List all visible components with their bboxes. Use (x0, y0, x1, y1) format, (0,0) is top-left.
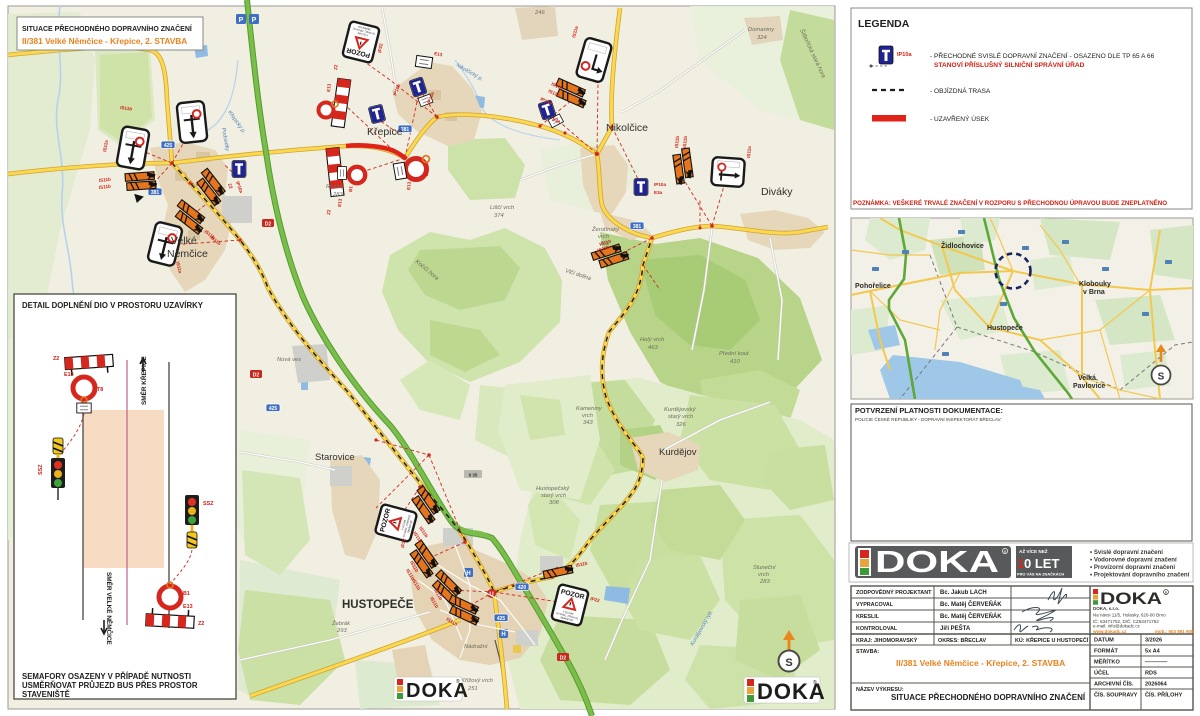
svg-text:Bc. Jakub LACH: Bc. Jakub LACH (940, 590, 987, 596)
svg-text:www.dokadc.cz: www.dokadc.cz (1092, 629, 1127, 634)
svg-text:STANOVÍ PŘÍSLUŠNÝ SILNIČNÍ SPR: STANOVÍ PŘÍSLUŠNÝ SILNIČNÍ SPRÁVNÍ ÚŘAD (934, 60, 1085, 69)
svg-text:0 LET: 0 LET (1024, 556, 1059, 571)
svg-text:KONTROLOVAL: KONTROLOVAL (856, 626, 898, 632)
svg-text:5x A4: 5x A4 (1145, 649, 1161, 655)
svg-text:S: S (1158, 372, 1165, 383)
svg-text:————: ———— (1145, 660, 1168, 666)
svg-text:ČÍS. PŘÍLOHY: ČÍS. PŘÍLOHY (1145, 691, 1183, 699)
svg-text:• Provizorní dopravní značení: • Provizorní dopravní značení (1090, 564, 1175, 571)
svg-text:Jiří PEŠTA: Jiří PEŠTA (940, 624, 971, 632)
svg-text:II/381 Velké Němčice - Křepice: II/381 Velké Němčice - Křepice, 2. STAVB… (896, 658, 1065, 668)
svg-text:ČÍS. SOUPRAVY: ČÍS. SOUPRAVY (1094, 691, 1138, 699)
svg-text:RDS: RDS (1145, 671, 1157, 677)
svg-text:Na návsi 11/5, Holasky, 620-00: Na návsi 11/5, Holasky, 620-00 Brno (1093, 613, 1166, 618)
svg-text:Bc. Matěj ČERVEŇÁK: Bc. Matěj ČERVEŇÁK (940, 612, 1002, 620)
svg-text:FORMÁT: FORMÁT (1094, 648, 1119, 655)
svg-text:R: R (1004, 550, 1007, 554)
svg-text:VYPRACOVAL: VYPRACOVAL (856, 602, 894, 608)
svg-text:POZNÁMKA: VEŠKERÉ TRVALÉ ZNAČE: POZNÁMKA: VEŠKERÉ TRVALÉ ZNAČENÍ V ROZPO… (853, 199, 1167, 207)
svg-text:e-mail: info@dokadc.cz: e-mail: info@dokadc.cz (1093, 624, 1141, 629)
svg-text:R: R (1165, 591, 1168, 595)
svg-text:KRESLIL: KRESLIL (856, 614, 880, 620)
svg-text:IP10a: IP10a (897, 52, 913, 58)
svg-text:POTVRZENÍ PLATNOSTI DOKUMENTAC: POTVRZENÍ PLATNOSTI DOKUMENTACE: (855, 406, 1003, 415)
svg-text:Židlochovice: Židlochovice (941, 241, 984, 250)
svg-text:DATUM: DATUM (1094, 638, 1114, 644)
svg-text:SITUACE PŘECHODNÉHO DOPRAVNÍHO: SITUACE PŘECHODNÉHO DOPRAVNÍHO ZNAČENÍ (891, 693, 1086, 702)
svg-text:3/2026: 3/2026 (1145, 638, 1162, 644)
svg-text:• Vodorovné dopravní značení: • Vodorovné dopravní značení (1090, 557, 1177, 564)
svg-text:Pavlovice: Pavlovice (1073, 383, 1105, 390)
svg-text:OKRES: BŘECLAV: OKRES: BŘECLAV (938, 636, 987, 644)
svg-text:DOKA: DOKA (875, 544, 999, 579)
svg-text:- OBJÍZDNÁ TRASA: - OBJÍZDNÁ TRASA (930, 86, 991, 95)
svg-text:PRO VÁS NA ZNAČKÁCH: PRO VÁS NA ZNAČKÁCH (1017, 572, 1064, 577)
svg-text:v Brna: v Brna (1083, 289, 1105, 296)
svg-text:DOKA, s.r.o.: DOKA, s.r.o. (1093, 606, 1119, 611)
svg-text:AŽ VÍCE NEŽ: AŽ VÍCE NEŽ (1019, 547, 1048, 554)
svg-text:- PŘECHODNÉ SVISLÉ DOPRAVNÍ ZN: - PŘECHODNÉ SVISLÉ DOPRAVNÍ ZNAČENÍ - OS… (930, 51, 1155, 60)
svg-text:LEGENDA: LEGENDA (858, 18, 910, 30)
svg-text:STAVBA:: STAVBA: (856, 649, 879, 655)
svg-text:Hustopeče: Hustopeče (987, 325, 1023, 332)
svg-text:• Projektování dopravního znač: • Projektování dopravního značení (1090, 572, 1190, 579)
svg-text:KRAJ: JIHOMORAVSKÝ: KRAJ: JIHOMORAVSKÝ (856, 637, 918, 644)
svg-text:mob.: 603 891 905: mob.: 603 891 905 (1155, 629, 1194, 634)
svg-text:• Svislé dopravní značení: • Svislé dopravní značení (1090, 549, 1163, 556)
svg-text:NÁZEV VÝKRESU:: NÁZEV VÝKRESU: (856, 686, 904, 693)
svg-text:- UZAVŘENÝ ÚSEK: - UZAVŘENÝ ÚSEK (930, 114, 990, 123)
svg-text:KÚ: KŘEPICE U HUSTOPEČÍ: KÚ: KŘEPICE U HUSTOPEČÍ (1015, 636, 1089, 644)
svg-text:MĚŘÍTKO: MĚŘÍTKO (1094, 658, 1120, 666)
svg-text:POLICIE ČESKÉ REPUBLIKY - DOPR: POLICIE ČESKÉ REPUBLIKY - DOPRAVNÍ INSPE… (855, 415, 1002, 422)
svg-text:Bc. Matěj ČERVEŇÁK: Bc. Matěj ČERVEŇÁK (940, 600, 1002, 608)
svg-text:2026064: 2026064 (1145, 682, 1168, 688)
svg-text:ZODPOVĚDNÝ PROJEKTANT: ZODPOVĚDNÝ PROJEKTANT (856, 588, 932, 596)
svg-text:Velká: Velká (1078, 375, 1096, 382)
svg-text:ÚČEL: ÚČEL (1094, 670, 1110, 677)
svg-text:Klobouky: Klobouky (1079, 281, 1111, 288)
svg-text:ARCHIVNÍ ČÍS.: ARCHIVNÍ ČÍS. (1094, 680, 1134, 688)
svg-text:Pohořelice: Pohořelice (855, 283, 891, 290)
